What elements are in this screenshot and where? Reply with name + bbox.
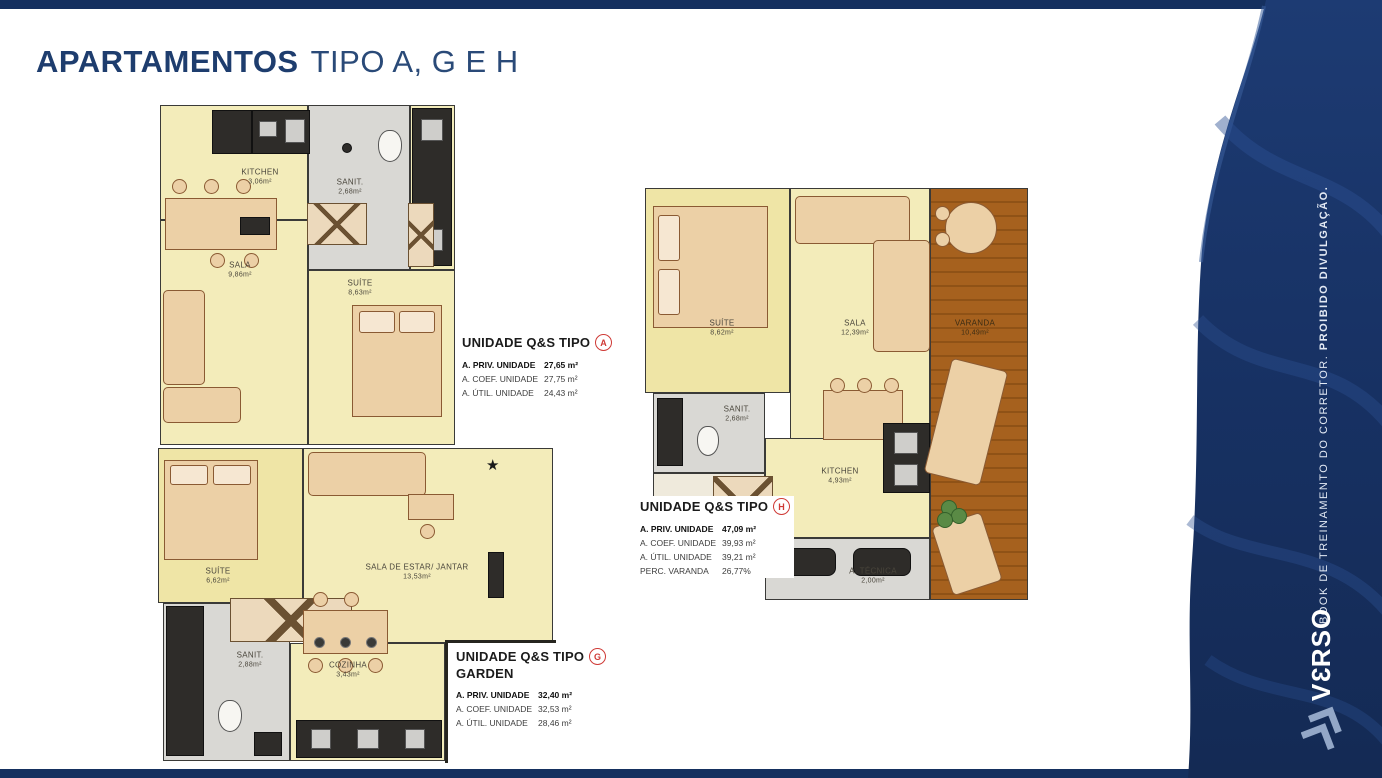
vanity-icon xyxy=(254,732,282,756)
plant-icon xyxy=(937,512,953,528)
wardrobe xyxy=(408,203,434,267)
row-value: 24,43 m² xyxy=(544,388,578,398)
unit-badge-h: H xyxy=(773,498,790,515)
room-label-sanit-h: SANIT. 2,68m² xyxy=(724,404,751,423)
room-area: 3,43m² xyxy=(329,671,367,680)
room-label-cozinha-g: COZINHA 3,43m² xyxy=(329,660,367,679)
unit-badge-a: A xyxy=(595,334,612,351)
chair xyxy=(935,232,950,247)
room-label-tecnica-h: A. TÉCNICA 2,00m² xyxy=(849,566,897,585)
unit-rows: A. PRIV. UNIDADE47,09 m² A. COEF. UNIDAD… xyxy=(640,524,790,576)
desk xyxy=(408,494,454,520)
room-name: SANIT. xyxy=(237,650,264,660)
chair xyxy=(344,592,359,607)
sink-icon xyxy=(259,121,277,137)
top-border-bar xyxy=(0,0,1382,9)
row-label: A. COEF. UNIDADE xyxy=(462,374,544,384)
room-area: 2,00m² xyxy=(849,577,897,586)
room-name: SUÍTE xyxy=(347,278,372,288)
wardrobe xyxy=(307,203,367,245)
bed xyxy=(164,460,258,560)
room-name: SUÍTE xyxy=(709,318,734,328)
room-label-sala-a: SALA 9,86m² xyxy=(228,260,252,279)
room-label-suite-a: SUÍTE 8,63m² xyxy=(347,278,372,297)
room-name: SUÍTE xyxy=(205,566,230,576)
tv-icon xyxy=(240,217,270,235)
sidebar-wave-panel xyxy=(1180,0,1382,778)
room-name: KITCHEN xyxy=(241,167,278,177)
kitchen-island xyxy=(303,610,388,654)
stove-icon xyxy=(285,119,305,143)
washer-icon xyxy=(421,119,443,141)
brand-logo: V3RSO xyxy=(1306,583,1337,701)
round-table xyxy=(945,202,997,254)
row-label: A. ÚTIL. UNIDADE xyxy=(462,388,544,398)
room-label-suite-h: SUÍTE 8,62m² xyxy=(709,318,734,337)
row-value: 32,40 m² xyxy=(538,690,572,700)
row-label: A. PRIV. UNIDADE xyxy=(640,524,722,534)
burner-icon xyxy=(340,637,351,648)
unit-row: A. COEF. UNIDADE27,75 m² xyxy=(462,374,594,384)
room-area: 4,93m² xyxy=(821,477,858,486)
room-area: 3,06m² xyxy=(241,178,278,187)
room-label-sanit-a: SANIT. 2,68m² xyxy=(337,177,364,196)
row-label: A. COEF. UNIDADE xyxy=(640,538,722,548)
pillow xyxy=(658,269,680,315)
room-name: SANIT. xyxy=(724,404,751,414)
pillow xyxy=(399,311,435,333)
room-name: SALA xyxy=(841,318,869,328)
wall-segment xyxy=(445,640,448,763)
sofa xyxy=(795,196,910,244)
unit-row: A. COEF. UNIDADE32,53 m² xyxy=(456,704,598,714)
row-value: 32,53 m² xyxy=(538,704,572,714)
brochure-page: APARTAMENTOSTIPO A, G E H xyxy=(0,0,1382,778)
unit-row: A. ÚTIL. UNIDADE28,46 m² xyxy=(456,718,598,728)
bottom-border-bar xyxy=(0,769,1382,778)
pillow xyxy=(213,465,251,485)
room-label-kitchen-a: KITCHEN 3,06m² xyxy=(241,167,278,186)
unit-card-title: UNIDADE Q&S TIPO H xyxy=(640,498,790,515)
room-name: SALA DE ESTAR/ JANTAR xyxy=(366,562,469,572)
wave-background xyxy=(1180,0,1382,778)
logo-letter-mirrored: 3 xyxy=(1306,667,1337,682)
room-area: 10,49m² xyxy=(955,329,995,338)
row-label: A. PRIV. UNIDADE xyxy=(456,690,538,700)
chair xyxy=(308,658,323,673)
row-value: 28,46 m² xyxy=(538,718,572,728)
star-icon: ★ xyxy=(486,456,499,474)
unit-row: A. COEF. UNIDADE39,93 m² xyxy=(640,538,790,548)
sofa-corner xyxy=(873,240,930,352)
room-name: COZINHA xyxy=(329,660,367,670)
room-name: SANIT. xyxy=(337,177,364,187)
row-value: 47,09 m² xyxy=(722,524,756,534)
chair xyxy=(210,253,225,268)
pillow xyxy=(170,465,208,485)
row-label: A. COEF. UNIDADE xyxy=(456,704,538,714)
unit-row: A. ÚTIL. UNIDADE24,43 m² xyxy=(462,388,594,398)
chair xyxy=(420,524,435,539)
row-label: A. ÚTIL. UNIDADE xyxy=(640,552,722,562)
oven-icon xyxy=(405,729,425,749)
row-value: 27,75 m² xyxy=(544,374,578,384)
chair xyxy=(313,592,328,607)
unit-title-text: UNIDADE Q&S TIPO xyxy=(462,335,590,350)
unit-card-tipo-a: UNIDADE Q&S TIPO A A. PRIV. UNIDADE27,65… xyxy=(458,332,598,400)
row-label: A. ÚTIL. UNIDADE xyxy=(456,718,538,728)
room-name: VARANDA xyxy=(955,318,995,328)
sofa xyxy=(308,452,426,496)
row-value: 27,65 m² xyxy=(544,360,578,370)
toilet-icon xyxy=(378,130,402,162)
room-area: 8,63m² xyxy=(347,289,372,298)
room-area: 6,62m² xyxy=(205,577,230,586)
shower-box xyxy=(166,606,204,756)
stove-icon xyxy=(894,432,918,454)
floorplan-tipo-a: KITCHEN 3,06m² SANIT. 2,68m² SALA 9,86m²… xyxy=(160,105,455,445)
room-area: 2,68m² xyxy=(724,415,751,424)
logo-letters: RSO xyxy=(1306,608,1336,667)
logo-letter: V xyxy=(1306,683,1336,701)
kitchen-counter xyxy=(296,720,442,758)
unit-badge-g: G xyxy=(589,648,606,665)
shower-icon xyxy=(342,143,352,153)
room-label-kitchen-h: KITCHEN 4,93m² xyxy=(821,466,858,485)
room-area: 8,62m² xyxy=(709,329,734,338)
unit-card-title: UNIDADE Q&S TIPO G xyxy=(456,648,598,665)
sink-icon xyxy=(311,729,331,749)
bed xyxy=(653,206,768,328)
unit-rows: A. PRIV. UNIDADE27,65 m² A. COEF. UNIDAD… xyxy=(462,360,594,398)
row-label: A. PRIV. UNIDADE xyxy=(462,360,544,370)
stove-icon xyxy=(357,729,379,749)
unit-row: A. ÚTIL. UNIDADE39,21 m² xyxy=(640,552,790,562)
brand-mark-icon xyxy=(1301,702,1347,759)
shower-box xyxy=(657,398,683,466)
wall-segment xyxy=(445,640,556,643)
unit-title-text: UNIDADE Q&S TIPO xyxy=(456,649,584,664)
room-area: 9,86m² xyxy=(228,271,252,280)
kitchen-counter xyxy=(252,110,310,154)
room-area: 12,39m² xyxy=(841,329,869,338)
room-label-varanda-h: VARANDA 10,49m² xyxy=(955,318,995,337)
room-name: KITCHEN xyxy=(821,466,858,476)
plant-icon xyxy=(951,508,967,524)
pillow xyxy=(359,311,395,333)
room-label-sala-h: SALA 12,39m² xyxy=(841,318,869,337)
burner-icon xyxy=(314,637,325,648)
unit-row: A. PRIV. UNIDADE27,65 m² xyxy=(462,360,594,370)
unit-row: A. PRIV. UNIDADE47,09 m² xyxy=(640,524,790,534)
toilet-icon xyxy=(218,700,242,732)
room-label-sala-g: SALA DE ESTAR/ JANTAR 13,53m² xyxy=(366,562,469,581)
tv-cabinet xyxy=(488,552,504,598)
sofa xyxy=(163,290,205,385)
row-value: 39,93 m² xyxy=(722,538,756,548)
chair xyxy=(830,378,845,393)
room-area: 2,68m² xyxy=(337,188,364,197)
chair xyxy=(368,658,383,673)
sofa-chaise xyxy=(163,387,241,423)
chair xyxy=(935,206,950,221)
kitchen-appliance-column xyxy=(883,423,930,493)
room-name: A. TÉCNICA xyxy=(849,566,897,576)
room-label-sanit-g: SANIT. 2,88m² xyxy=(237,650,264,669)
burner-icon xyxy=(366,637,377,648)
room-area: 13,53m² xyxy=(366,573,469,582)
oven-icon xyxy=(894,464,918,486)
watermark-bold: PROIBIDO DIVULGAÇÃO. xyxy=(1318,186,1330,350)
chair xyxy=(204,179,219,194)
chair xyxy=(884,378,899,393)
unit-card-title: UNIDADE Q&S TIPO A xyxy=(462,334,594,351)
bed xyxy=(352,305,442,417)
page-title-bold: APARTAMENTOS xyxy=(36,44,299,79)
page-title: APARTAMENTOSTIPO A, G E H xyxy=(36,44,519,80)
room-label-suite-g: SUÍTE 6,62m² xyxy=(205,566,230,585)
chair xyxy=(857,378,872,393)
room-name: SALA xyxy=(228,260,252,270)
unit-rows: A. PRIV. UNIDADE32,40 m² A. COEF. UNIDAD… xyxy=(456,690,598,728)
toilet-icon xyxy=(697,426,719,456)
unit-card-subtitle: GARDEN xyxy=(456,666,598,681)
unit-card-tipo-g: UNIDADE Q&S TIPO G GARDEN A. PRIV. UNIDA… xyxy=(452,646,602,730)
page-title-subtitle: TIPO A, G E H xyxy=(311,44,519,79)
room-area: 2,88m² xyxy=(237,661,264,670)
unit-row: PERC. VARANDA26,77% xyxy=(640,566,790,576)
pillow xyxy=(658,215,680,261)
chair xyxy=(172,179,187,194)
row-value: 39,21 m² xyxy=(722,552,756,562)
confidentiality-watermark: BOOK DE TREINAMENTO DO CORRETOR. PROIBID… xyxy=(1318,102,1333,624)
unit-title-text: UNIDADE Q&S TIPO xyxy=(640,499,768,514)
fridge-icon xyxy=(212,110,252,154)
unit-row: A. PRIV. UNIDADE32,40 m² xyxy=(456,690,598,700)
unit-card-tipo-h: UNIDADE Q&S TIPO H A. PRIV. UNIDADE47,09… xyxy=(636,496,794,578)
row-label: PERC. VARANDA xyxy=(640,566,722,576)
row-value: 26,77% xyxy=(722,566,751,576)
